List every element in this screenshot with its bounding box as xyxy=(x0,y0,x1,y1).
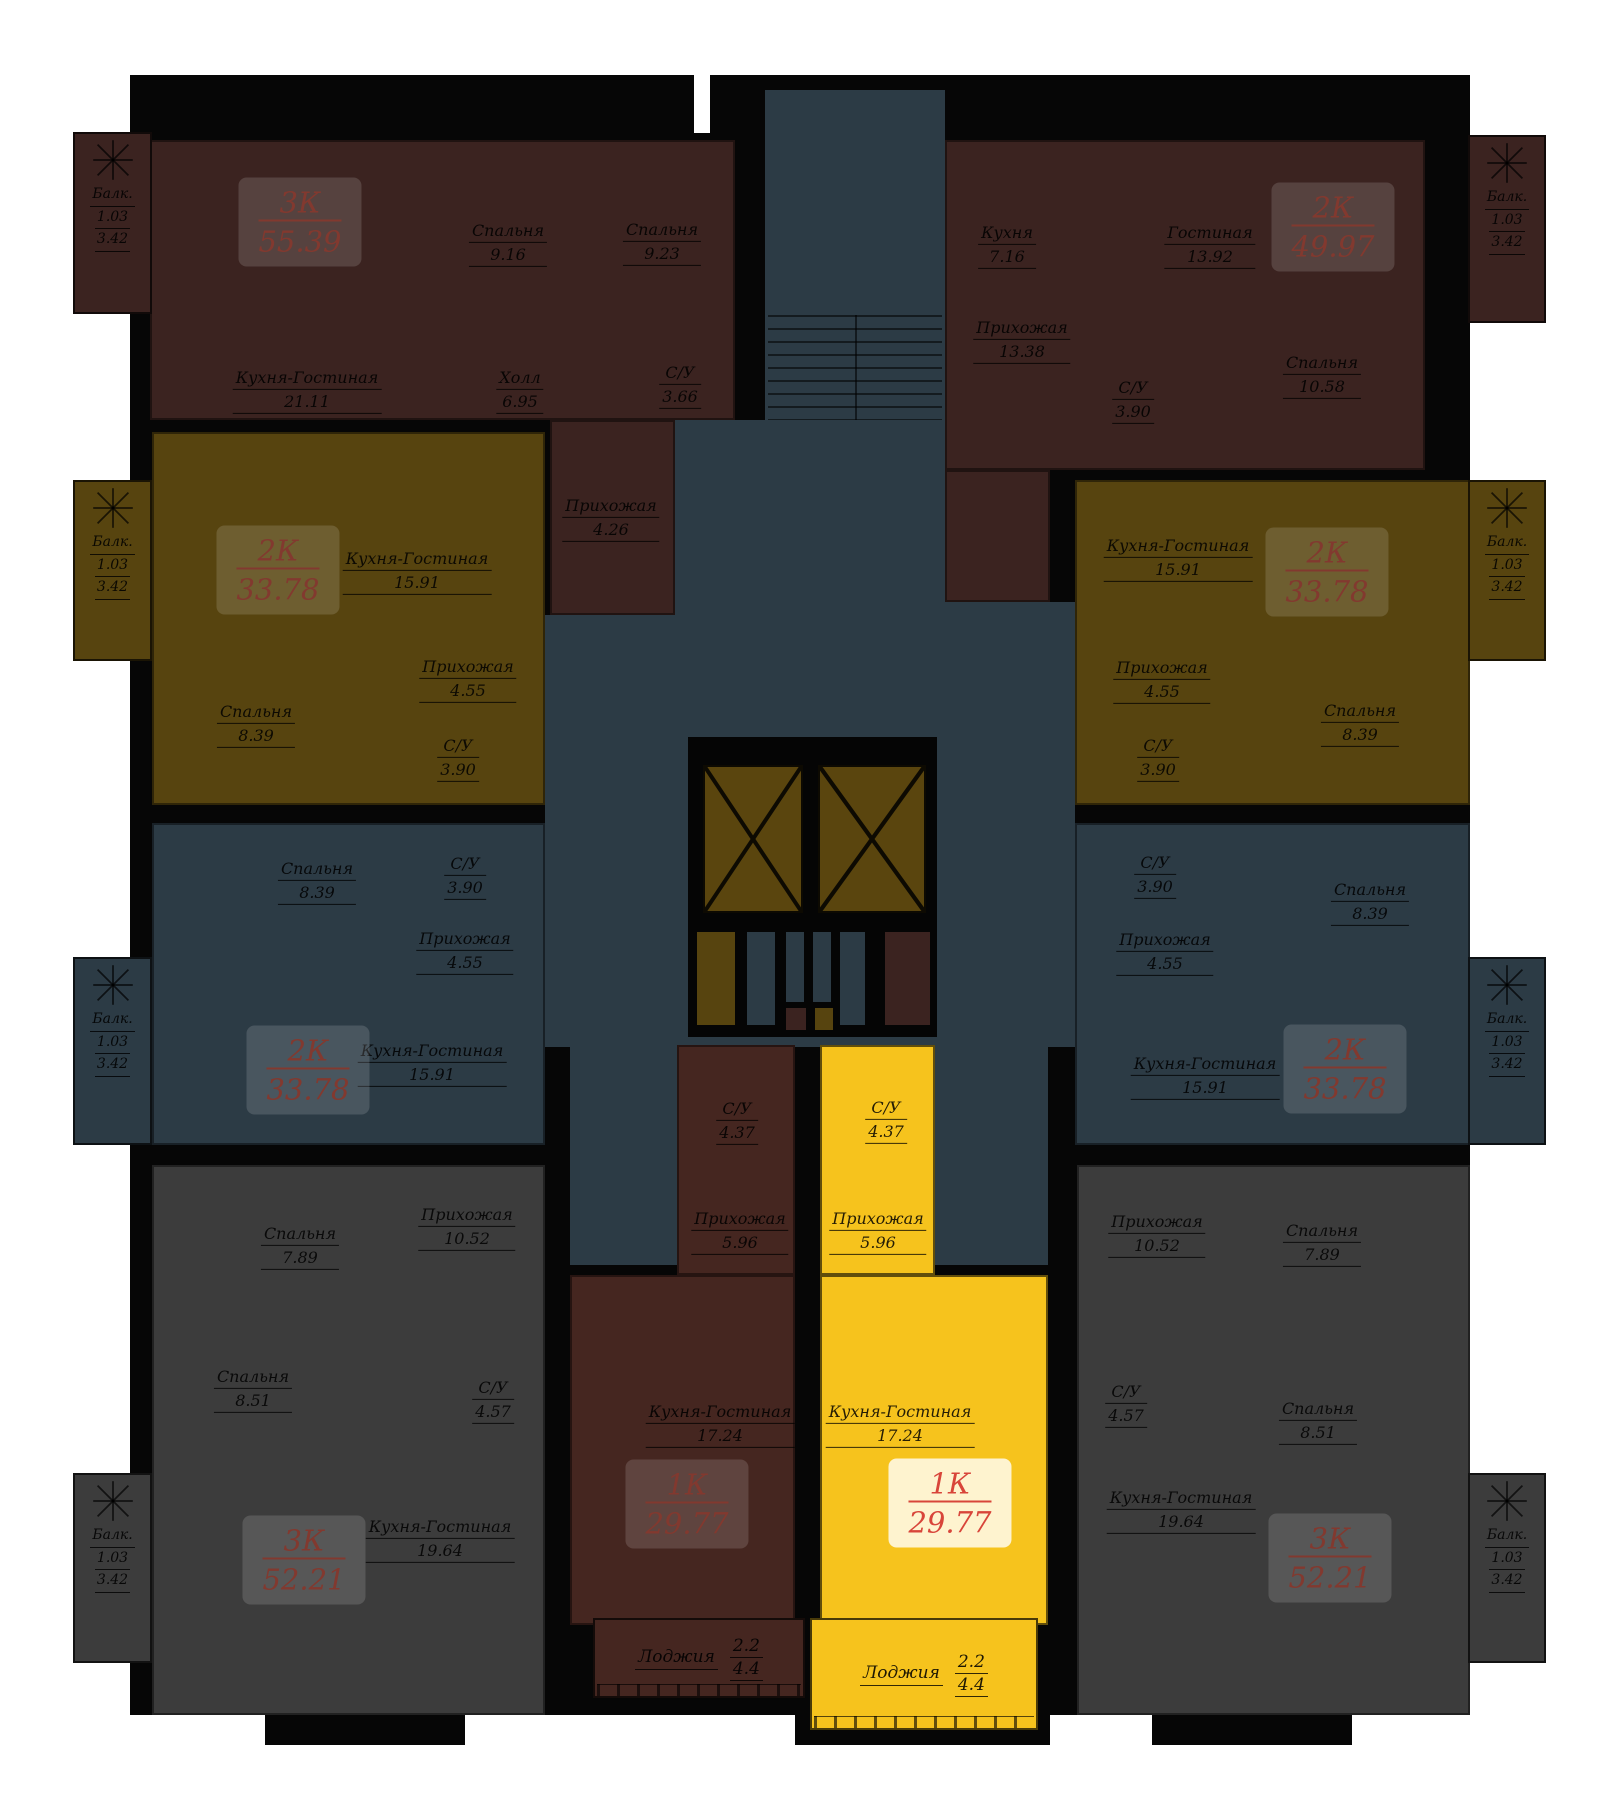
balcony: Балк.1.033.42 xyxy=(1468,135,1546,323)
apartment-badge-3k-top-left[interactable]: 3К55.39 xyxy=(238,178,361,267)
plant-icon xyxy=(91,1479,135,1523)
corridor-left-wing xyxy=(545,615,675,1047)
room-label-bathroom: С/У4.57 xyxy=(1105,1380,1147,1428)
plant-icon xyxy=(91,963,135,1007)
room-label-bedroom: Спальня7.89 xyxy=(261,1222,339,1270)
room-label-hall: Холл6.95 xyxy=(496,366,543,414)
apartment-badge-3k-bottom-right[interactable]: 3К52.21 xyxy=(1268,1514,1391,1603)
balcony: Балк.1.033.42 xyxy=(73,1473,152,1663)
room-label-entry: Прихожая5.96 xyxy=(691,1207,788,1255)
room-label-bedroom: Спальня8.39 xyxy=(278,857,356,905)
room-label-bathroom: С/У3.90 xyxy=(437,734,479,782)
plant-icon xyxy=(1485,963,1529,1007)
room-label-kitchen-living: Кухня-Гостиная15.91 xyxy=(1131,1052,1280,1100)
balcony: Балк.1.033.42 xyxy=(73,957,152,1145)
apartment-badge-2k-top-right[interactable]: 2К49.97 xyxy=(1271,183,1394,272)
riser-strip xyxy=(697,932,735,1025)
plant-icon xyxy=(1485,486,1529,530)
room-label-bathroom: С/У3.90 xyxy=(1137,734,1179,782)
room-label-bathroom: С/У4.37 xyxy=(865,1096,907,1144)
apartment-badge-1k-left[interactable]: 1К29.77 xyxy=(625,1460,748,1549)
room-label-bathroom: С/У4.37 xyxy=(716,1097,758,1145)
room-label-bathroom: С/У3.66 xyxy=(659,361,701,409)
riser-strip xyxy=(786,932,804,1002)
corridor-right-wing xyxy=(945,602,1075,1047)
loggia: Лоджия 2.24.4 xyxy=(593,1618,805,1698)
plant-icon xyxy=(1485,141,1529,185)
plant-icon xyxy=(91,138,135,182)
apartment-badge-3k-bottom-left[interactable]: 3К52.21 xyxy=(242,1516,365,1605)
plant-icon xyxy=(1485,1479,1529,1523)
corridor-left-lower xyxy=(570,1047,677,1265)
loggia-selected: Лоджия 2.24.4 xyxy=(810,1618,1038,1730)
room-label-kitchen-living: Кухня-Гостиная15.91 xyxy=(343,547,492,595)
apartment-badge-1k-selected[interactable]: 1К29.77 xyxy=(888,1459,1011,1548)
corridor-right-lower xyxy=(935,1047,1048,1265)
riser-strip xyxy=(813,932,831,1002)
apartment-badge-2k-lower-left[interactable]: 2К33.78 xyxy=(246,1026,369,1115)
riser-strip xyxy=(840,932,865,1025)
room-label-living: Гостиная13.92 xyxy=(1164,221,1255,269)
room-label-kitchen-living: Кухня-Гостиная17.24 xyxy=(646,1400,795,1448)
riser-strip xyxy=(815,1008,833,1030)
apartment-badge-2k-mid-left[interactable]: 2К33.78 xyxy=(216,526,339,615)
room-label-entry: Прихожая4.26 xyxy=(562,494,659,542)
riser-strip xyxy=(885,932,930,1025)
entrance-gap xyxy=(694,75,710,133)
room-label-bedroom: Спальня9.16 xyxy=(469,219,547,267)
room-label-entry: Прихожая10.52 xyxy=(418,1203,515,1251)
room-label-bedroom: Спальня7.89 xyxy=(1283,1219,1361,1267)
room-label-entry: Прихожая4.55 xyxy=(1116,928,1213,976)
room-label-bathroom: С/У3.90 xyxy=(1134,851,1176,899)
balcony: Балк.1.033.42 xyxy=(73,480,152,661)
riser-strip xyxy=(747,932,775,1025)
room-label-entry: Прихожая4.55 xyxy=(1113,656,1210,704)
room-label-bedroom: Спальня8.51 xyxy=(214,1365,292,1413)
room-label-entry: Прихожая4.55 xyxy=(419,655,516,703)
elevator-shaft-icon xyxy=(818,765,926,913)
room-label-bathroom: С/У4.57 xyxy=(472,1376,514,1424)
room-label-bedroom: Спальня10.58 xyxy=(1283,351,1361,399)
balcony: Балк.1.033.42 xyxy=(73,132,152,314)
room-label-bathroom: С/У3.90 xyxy=(444,852,486,900)
apartment-1k-left-kitchen[interactable] xyxy=(570,1275,795,1625)
room-label-entry: Прихожая4.55 xyxy=(416,927,513,975)
elevator-shaft-icon xyxy=(703,765,803,913)
room-label-kitchen-living: Кухня-Гостиная15.91 xyxy=(1104,534,1253,582)
floor-plan: Балк.1.033.42 Балк.1.033.42 Балк.1.033.4… xyxy=(0,0,1619,1798)
corridor-center xyxy=(675,420,945,750)
riser-strip xyxy=(786,1008,806,1030)
apartment-2k-mid-left-region[interactable] xyxy=(152,432,545,805)
room-label-kitchen-living: Кухня-Гостиная19.64 xyxy=(1107,1486,1256,1534)
room-label-kitchen-living: Кухня-Гостиная19.64 xyxy=(366,1515,515,1563)
room-label-entry: Прихожая5.96 xyxy=(829,1207,926,1255)
room-label-kitchen-living: Кухня-Гостиная17.24 xyxy=(826,1400,975,1448)
room-label-bedroom: Спальня8.39 xyxy=(1321,699,1399,747)
room-label-entry: Прихожая10.52 xyxy=(1108,1210,1205,1258)
room-label-bedroom: Спальня8.51 xyxy=(1279,1397,1357,1445)
room-label-bedroom: Спальня9.23 xyxy=(623,218,701,266)
balcony: Балк.1.033.42 xyxy=(1468,480,1546,661)
apartment-badge-2k-mid-right[interactable]: 2К33.78 xyxy=(1265,528,1388,617)
room-label-entry: Прихожая13.38 xyxy=(973,316,1070,364)
apartment-2k-top-right-hall[interactable] xyxy=(945,470,1050,602)
balcony: Балк.1.033.42 xyxy=(1468,957,1546,1145)
apartment-badge-2k-lower-right[interactable]: 2К33.78 xyxy=(1283,1025,1406,1114)
room-label-bedroom: Спальня8.39 xyxy=(1331,878,1409,926)
balcony: Балк.1.033.42 xyxy=(1468,1473,1546,1663)
room-label-bathroom: С/У3.90 xyxy=(1112,376,1154,424)
room-label-kitchen-living: Кухня-Гостиная15.91 xyxy=(358,1039,507,1087)
plant-icon xyxy=(91,486,135,530)
room-label-kitchen-living: Кухня-Гостиная21.11 xyxy=(233,366,382,414)
room-label-kitchen: Кухня7.16 xyxy=(978,221,1036,269)
room-label-bedroom: Спальня8.39 xyxy=(217,700,295,748)
apartment-1k-selected-kitchen[interactable] xyxy=(820,1275,1048,1625)
